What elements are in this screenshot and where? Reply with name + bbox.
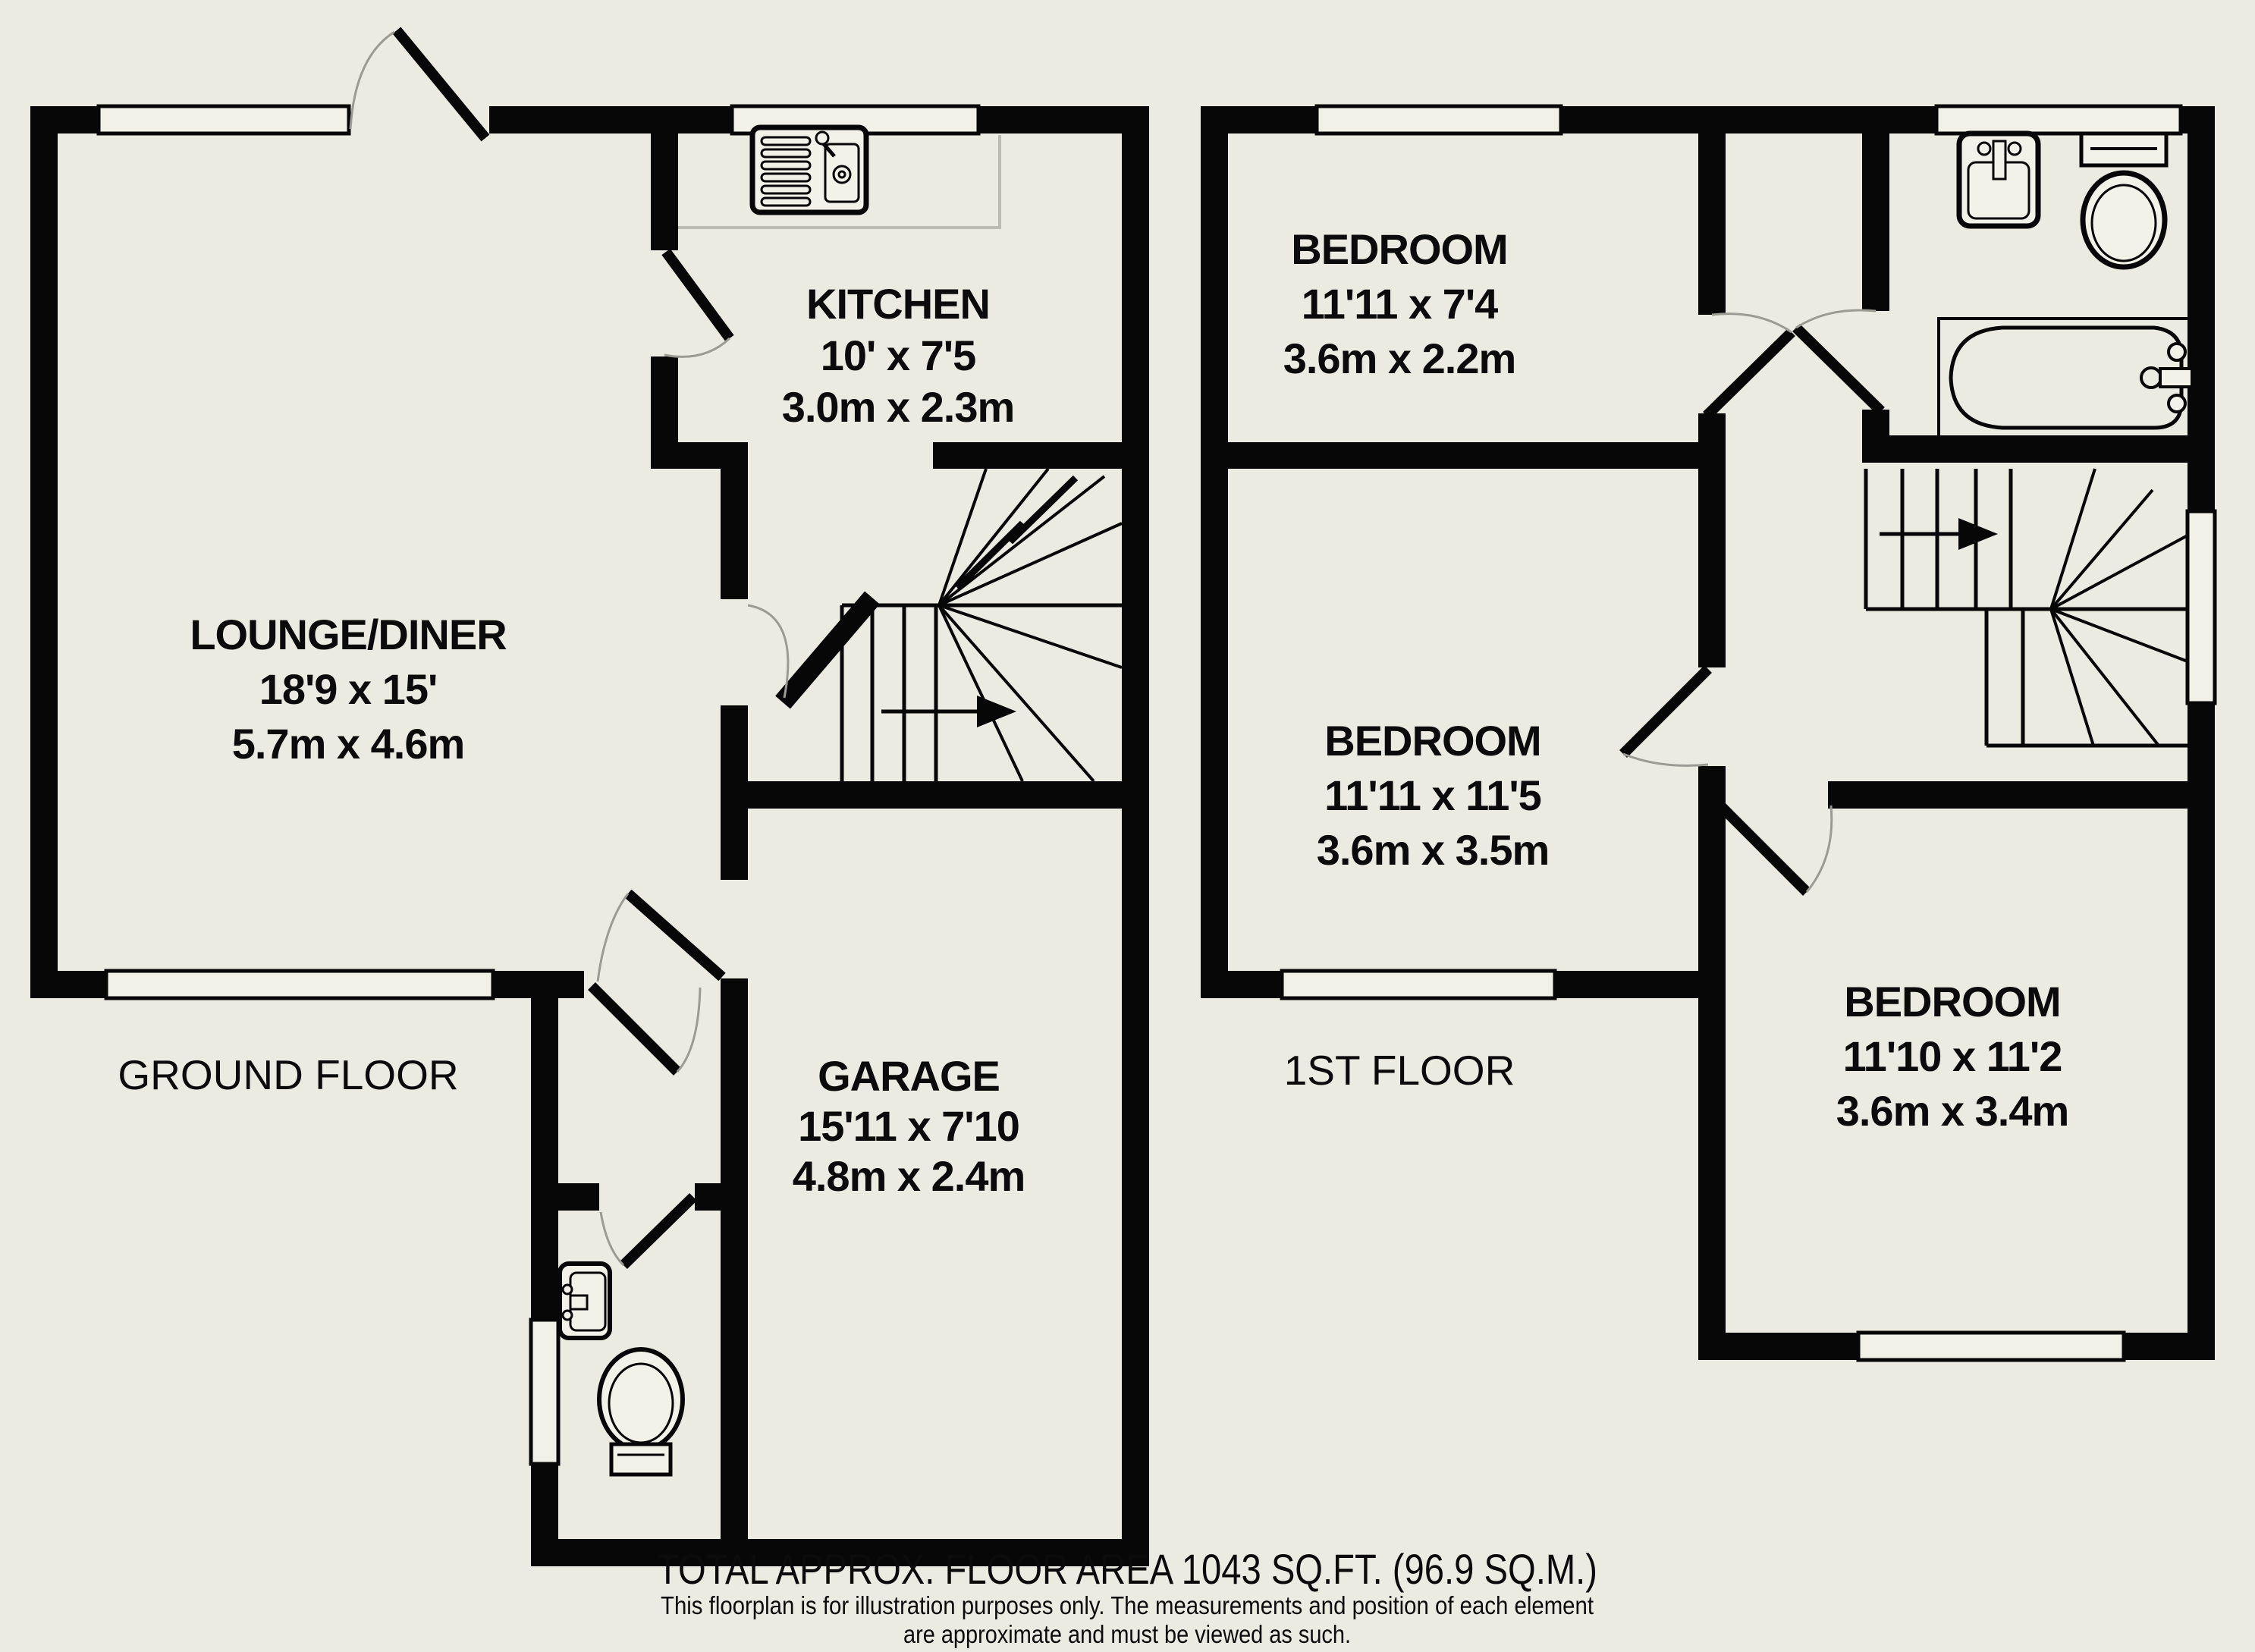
landing-window xyxy=(2187,511,2215,703)
first-floor-stairs xyxy=(1866,469,2187,746)
garage-name-label: GARAGE xyxy=(818,1052,1000,1100)
bedroom3-imperial-label: 11'10 x 11'2 xyxy=(1843,1032,2062,1080)
floorplan-drawing: LOUNGE/DINER 18'9 x 15' 5.7m x 4.6m KITC… xyxy=(0,0,2255,1652)
bedroom3-name-label: BEDROOM xyxy=(1844,978,2060,1025)
lobby-door xyxy=(592,986,700,1072)
disclaimer-line1: This floorplan is for illustration purpo… xyxy=(661,1591,1594,1619)
total-floor-area-label: TOTAL APPROX. FLOOR AREA 1043 SQ.FT. (96… xyxy=(657,1545,1597,1593)
garage-imperial-label: 15'11 x 7'10 xyxy=(798,1102,1019,1150)
bedroom1-door xyxy=(1707,314,1792,416)
bedroom2-metric-label: 3.6m x 3.5m xyxy=(1317,826,1550,874)
kitchen-door xyxy=(664,252,730,356)
bedroom1-window xyxy=(1317,106,1561,133)
hall-door xyxy=(748,605,788,698)
lounge-bottom-window xyxy=(106,971,493,998)
bedroom2-door xyxy=(1623,669,1708,765)
bedroom3-window xyxy=(1858,1333,2124,1360)
lounge-metric-label: 5.7m x 4.6m xyxy=(232,720,465,768)
lounge-name-label: LOUNGE/DINER xyxy=(190,611,507,658)
garage-metric-label: 4.8m x 2.4m xyxy=(793,1152,1025,1200)
garage-door xyxy=(598,894,722,981)
wc-door xyxy=(601,1197,693,1265)
bedroom3-door xyxy=(1720,806,1832,892)
ground-floor-label: GROUND FLOOR xyxy=(118,1051,458,1098)
bedroom2-window xyxy=(1282,971,1555,998)
kitchen-name-label: KITCHEN xyxy=(806,280,990,328)
bedroom2-name-label: BEDROOM xyxy=(1324,717,1540,765)
understairs-angled-wall xyxy=(783,598,872,702)
lounge-imperial-label: 18'9 x 15' xyxy=(259,665,438,713)
first-floor-label: 1ST FLOOR xyxy=(1284,1047,1515,1094)
wc-window xyxy=(531,1320,558,1464)
kitchen-imperial-label: 10' x 7'5 xyxy=(821,331,975,379)
footer: TOTAL APPROX. FLOOR AREA 1043 SQ.FT. (96… xyxy=(657,1545,1597,1648)
bedroom3-metric-label: 3.6m x 3.4m xyxy=(1836,1087,2069,1135)
ground-floor-stairs xyxy=(842,469,1122,781)
bath-tub-icon xyxy=(1939,319,2192,440)
kitchen-sink-icon xyxy=(752,127,866,212)
bathroom-window xyxy=(1936,106,2181,133)
bathroom-sink-icon xyxy=(1959,133,2038,226)
wc-sink-icon xyxy=(560,1264,610,1338)
bedroom1-name-label: BEDROOM xyxy=(1291,225,1507,273)
bathroom-toilet-icon xyxy=(2081,133,2166,267)
disclaimer-line2: are approximate and must be viewed as su… xyxy=(903,1620,1351,1648)
bedroom1-imperial-label: 11'11 x 7'4 xyxy=(1302,280,1498,328)
bedroom2-imperial-label: 11'11 x 11'5 xyxy=(1324,771,1541,819)
bedroom1-metric-label: 3.6m x 2.2m xyxy=(1283,334,1516,382)
kitchen-metric-label: 3.0m x 2.3m xyxy=(782,383,1015,431)
front-door xyxy=(350,30,485,138)
wc-toilet-icon xyxy=(599,1349,683,1475)
bathroom-door xyxy=(1796,310,1881,411)
floorplan-page: LOUNGE/DINER 18'9 x 15' 5.7m x 4.6m KITC… xyxy=(0,0,2255,1652)
ground-floor-plan: LOUNGE/DINER 18'9 x 15' 5.7m x 4.6m KITC… xyxy=(30,30,1149,1566)
first-floor-plan: BEDROOM 11'11 x 7'4 3.6m x 2.2m BEDROOM … xyxy=(1201,106,2215,1360)
lounge-top-window xyxy=(99,106,349,133)
